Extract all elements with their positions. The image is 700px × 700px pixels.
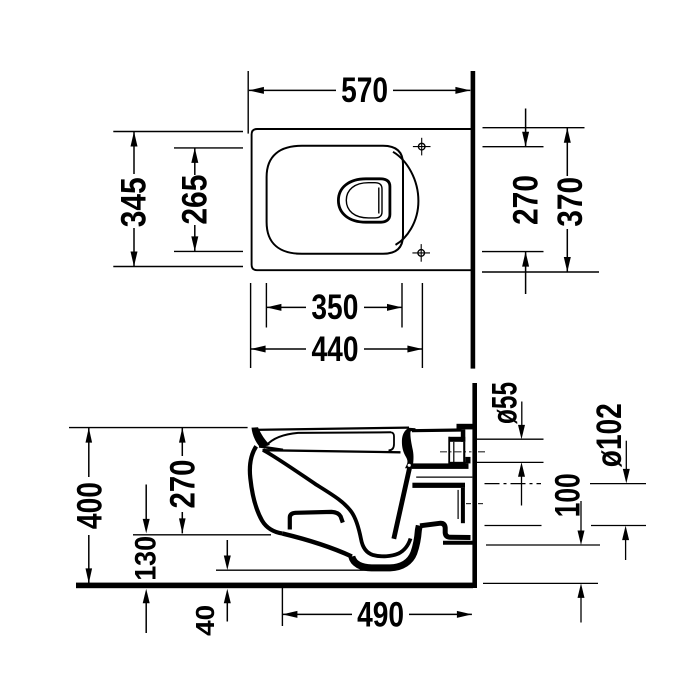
svg-text:400: 400 (71, 482, 110, 529)
svg-text:570: 570 (341, 71, 388, 110)
svg-text:490: 490 (357, 596, 404, 635)
svg-text:265: 265 (175, 175, 214, 225)
svg-text:345: 345 (115, 177, 154, 227)
svg-text:370: 370 (551, 177, 590, 227)
svg-text:130: 130 (130, 536, 163, 581)
svg-text:350: 350 (311, 288, 358, 327)
svg-text:270: 270 (507, 175, 546, 225)
svg-text:440: 440 (312, 330, 359, 369)
svg-text:270: 270 (164, 460, 203, 509)
svg-text:40: 40 (190, 605, 220, 636)
svg-text:ø102: ø102 (590, 403, 629, 467)
svg-text:100: 100 (549, 473, 588, 517)
svg-text:ø55: ø55 (486, 382, 525, 424)
